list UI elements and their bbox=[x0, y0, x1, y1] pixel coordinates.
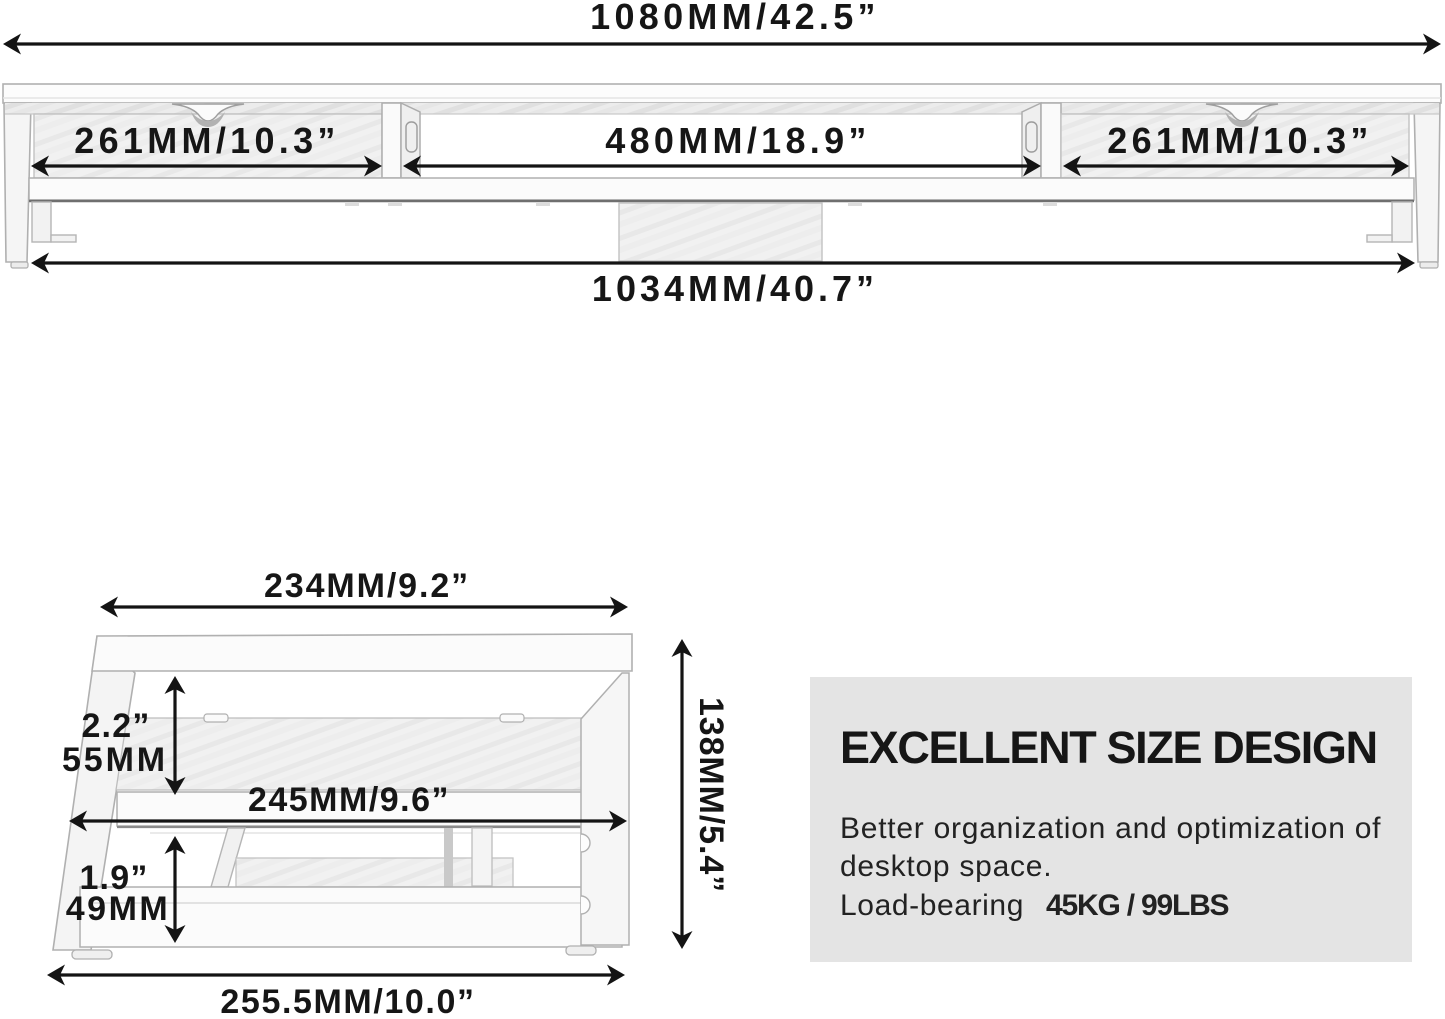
svg-text:1080MM/42.5”: 1080MM/42.5” bbox=[590, 0, 880, 37]
svg-text:55MM: 55MM bbox=[62, 741, 168, 779]
svg-text:Better organization and optimi: Better organization and optimization of bbox=[840, 812, 1381, 845]
svg-text:138MM/5.4”: 138MM/5.4” bbox=[692, 697, 730, 893]
svg-text:245MM/9.6”: 245MM/9.6” bbox=[248, 781, 450, 819]
svg-text:EXCELLENT SIZE DESIGN: EXCELLENT SIZE DESIGN bbox=[840, 722, 1377, 773]
svg-text:desktop space.: desktop space. bbox=[840, 850, 1052, 883]
svg-text:234MM/9.2”: 234MM/9.2” bbox=[264, 567, 470, 605]
svg-text:1034MM/40.7”: 1034MM/40.7” bbox=[592, 268, 878, 309]
svg-text:49MM: 49MM bbox=[66, 890, 170, 928]
svg-text:255.5MM/10.0”: 255.5MM/10.0” bbox=[220, 983, 475, 1019]
svg-text:2.2”: 2.2” bbox=[81, 707, 150, 745]
svg-text:261MM/10.3”: 261MM/10.3” bbox=[74, 120, 339, 161]
svg-text:261MM/10.3”: 261MM/10.3” bbox=[1107, 120, 1372, 161]
svg-text:480MM/18.9”: 480MM/18.9” bbox=[605, 120, 870, 161]
